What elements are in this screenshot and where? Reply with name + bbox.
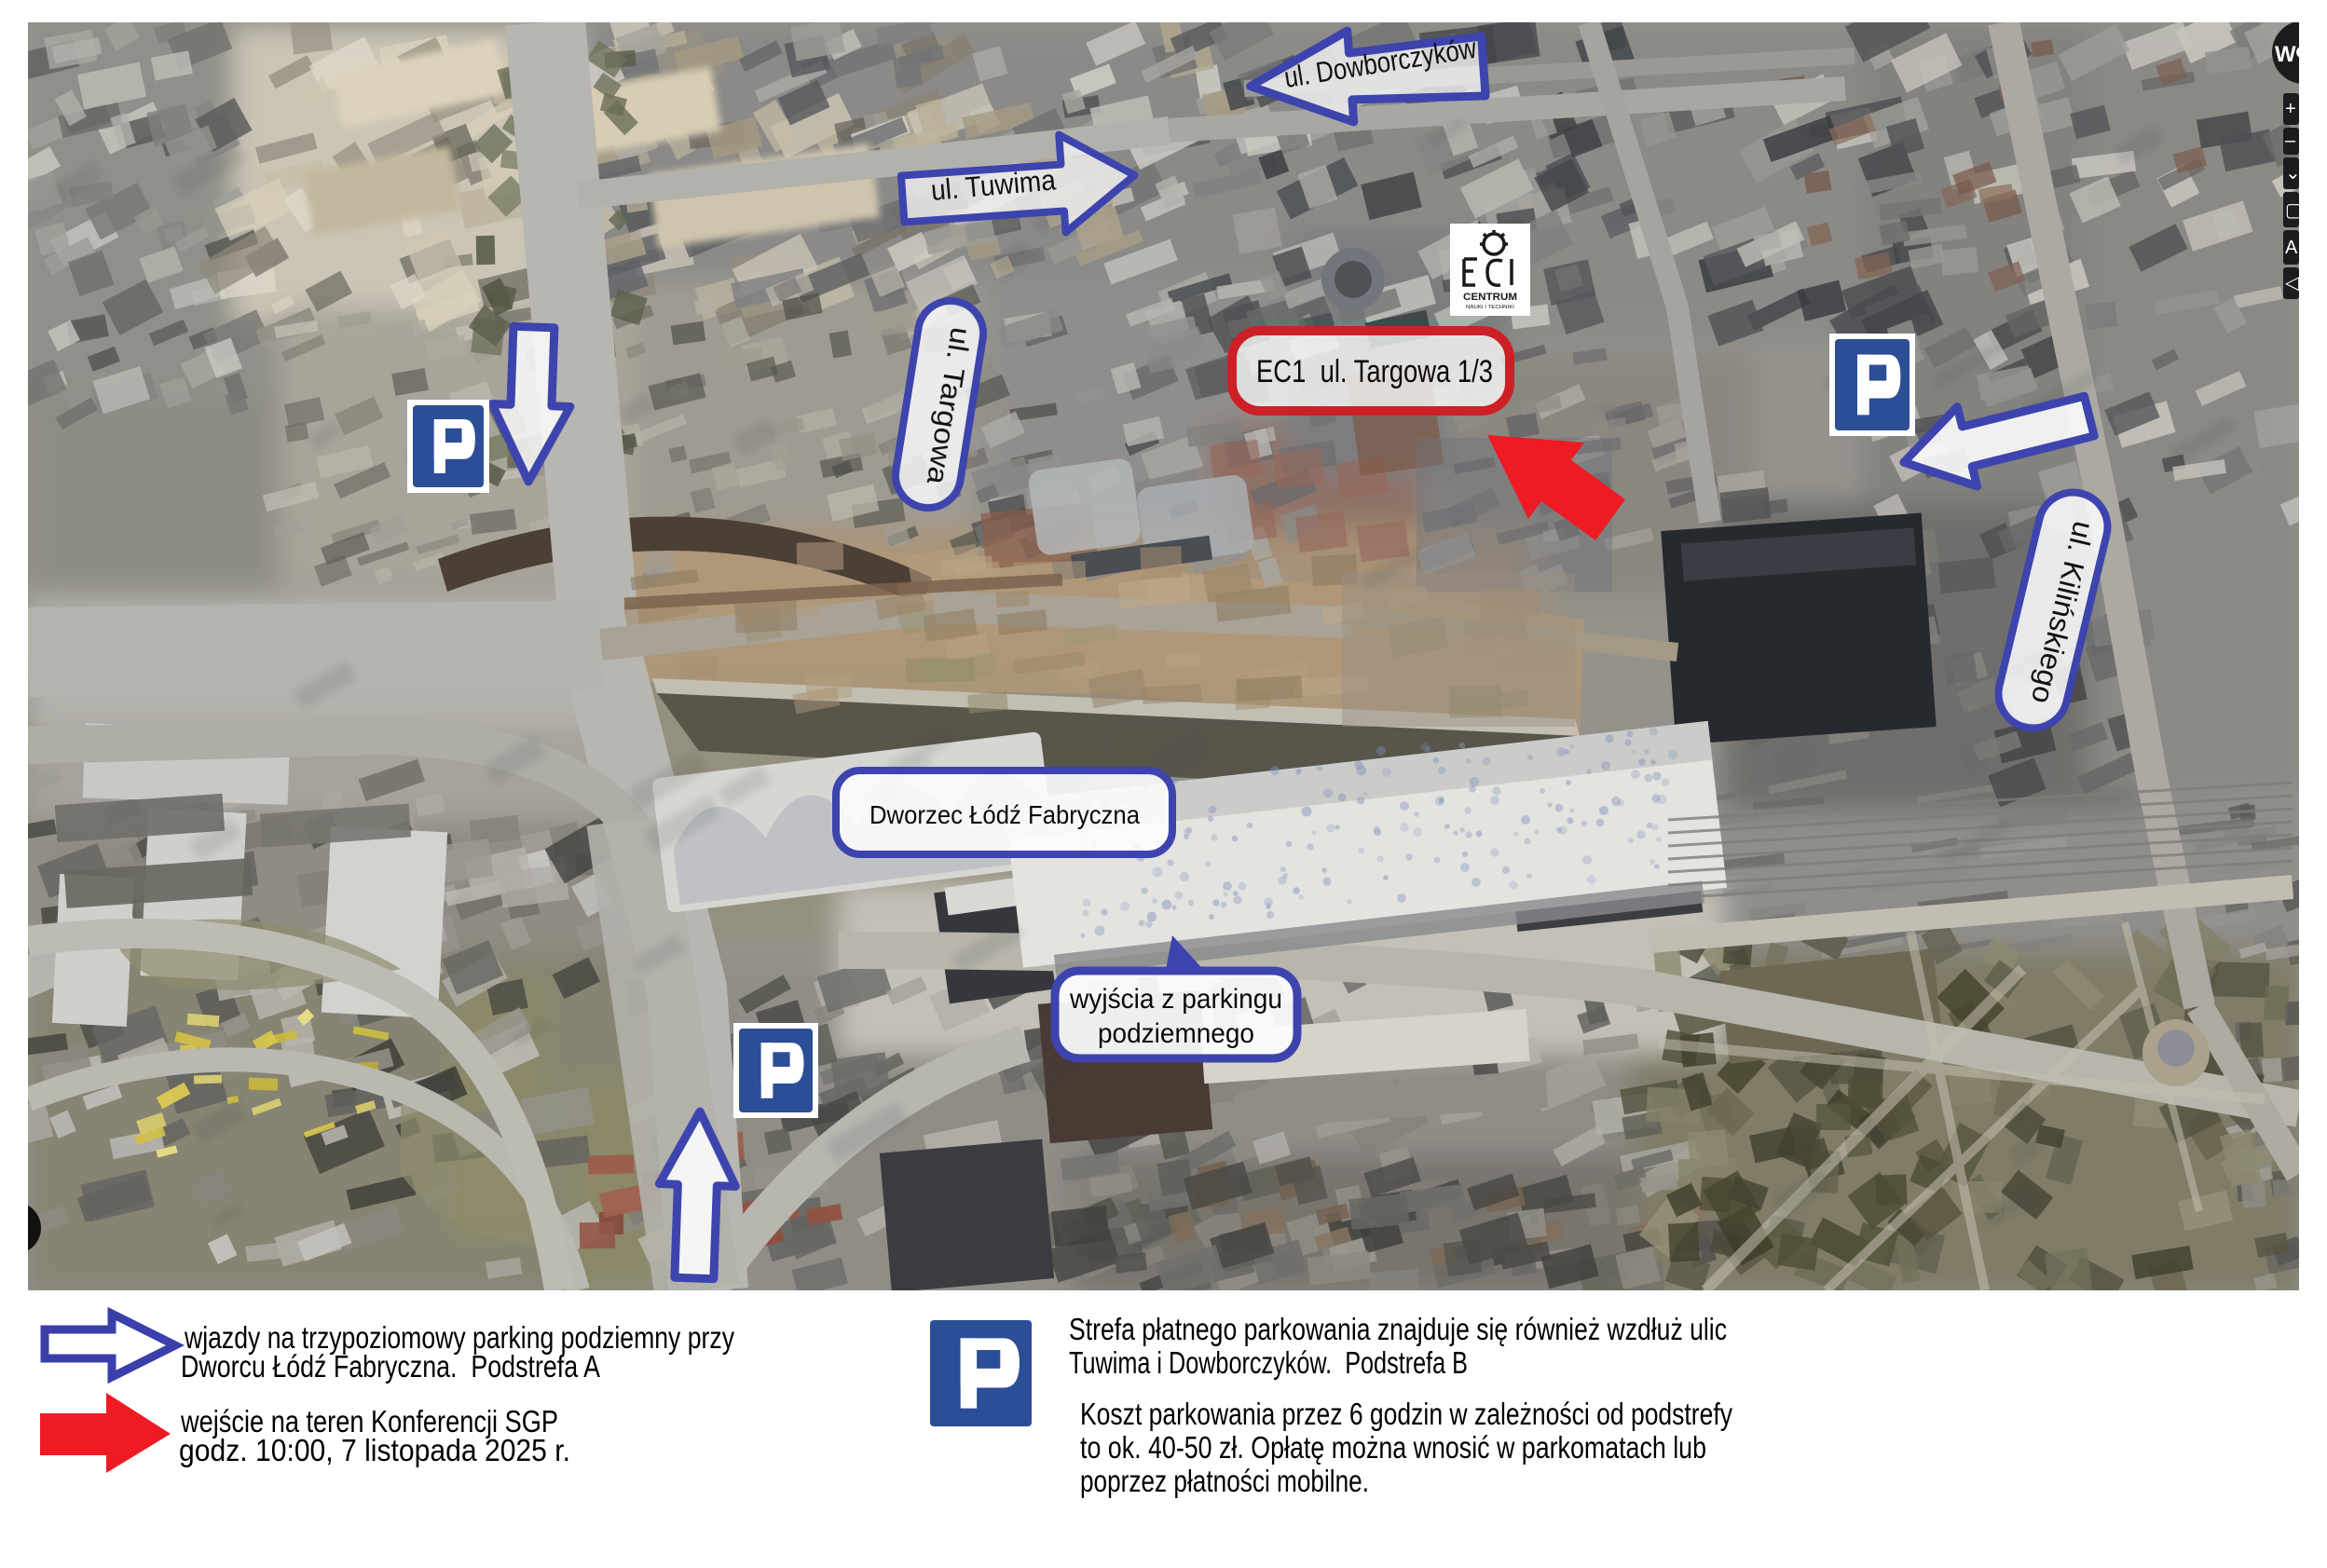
- svg-text:◁: ◁: [2285, 273, 2300, 293]
- svg-text:⌄: ⌄: [2285, 163, 2301, 184]
- svg-text:Strefa płatnego parkowania zna: Strefa płatnego parkowania znajduje się …: [1069, 1312, 1727, 1346]
- svg-text:+: +: [2285, 99, 2296, 119]
- svg-text:W: W: [2275, 42, 2296, 67]
- svg-text:A: A: [2285, 238, 2298, 258]
- svg-text:▢: ▢: [2285, 200, 2303, 221]
- svg-text:Tuwima i Dowborczyków. Podstr: Tuwima i Dowborczyków. Podstrefa B: [1069, 1345, 1468, 1380]
- svg-text:wyjścia z parkingu: wyjścia z parkingu: [1069, 984, 1282, 1015]
- svg-text:poprzez płatności mobilne.: poprzez płatności mobilne.: [1080, 1464, 1369, 1498]
- svg-text:NAUKI I TECHNIKI: NAUKI I TECHNIKI: [1466, 305, 1514, 310]
- svg-text:–: –: [2285, 130, 2296, 151]
- svg-text:Koszt parkowania przez 6 godzi: Koszt parkowania przez 6 godzin w zależn…: [1080, 1397, 1732, 1431]
- svg-text:Dworcu Łódź Fabryczna. Podstr: Dworcu Łódź Fabryczna. Podstrefa A: [181, 1349, 600, 1384]
- svg-text:CENTRUM: CENTRUM: [1463, 292, 1517, 303]
- svg-text:godz. 10:00, 7 listopada 2025: godz. 10:00, 7 listopada 2025 r.: [179, 1433, 570, 1467]
- svg-text:Dworzec Łódź Fabryczna: Dworzec Łódź Fabryczna: [869, 800, 1140, 829]
- svg-text:to ok. 40-50 zł. Opłatę można: to ok. 40-50 zł. Opłatę można wnosić w p…: [1080, 1430, 1706, 1465]
- svg-text:podziemnego: podziemnego: [1098, 1018, 1254, 1049]
- svg-text:EC1 ul. Targowa 1/3: EC1 ul. Targowa 1/3: [1256, 354, 1493, 389]
